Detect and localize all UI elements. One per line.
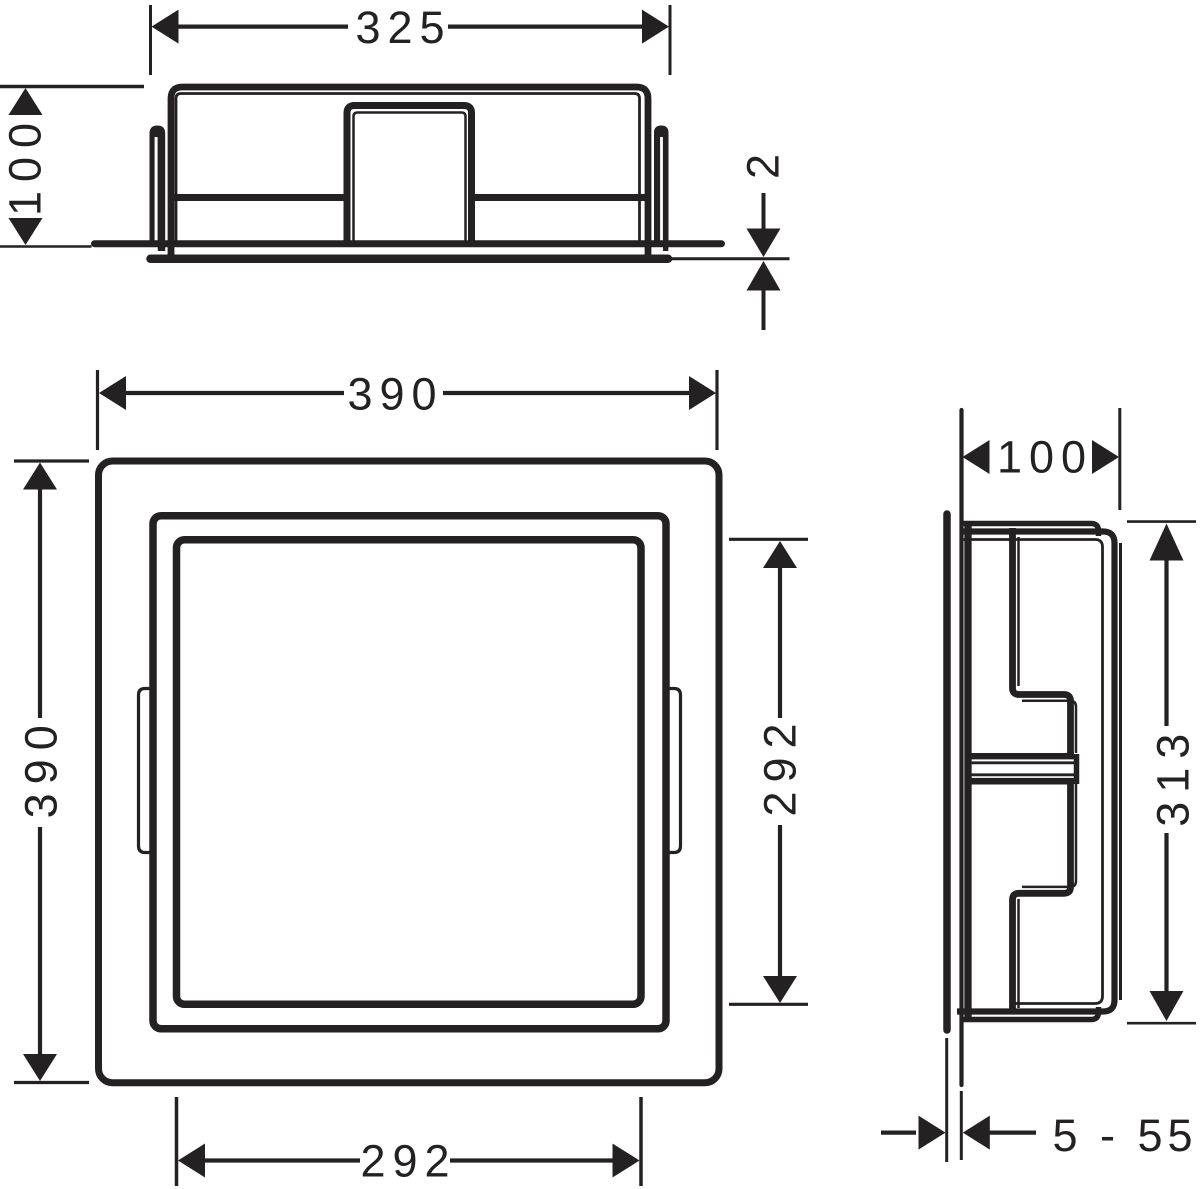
svg-text:292: 292 [755, 714, 806, 816]
svg-text:325: 325 [355, 2, 451, 53]
svg-text:100: 100 [0, 114, 51, 216]
svg-text:390: 390 [347, 369, 443, 420]
svg-text:313: 313 [1148, 725, 1199, 827]
svg-text:100: 100 [997, 432, 1093, 483]
svg-text:292: 292 [360, 1136, 456, 1187]
svg-text:390: 390 [16, 716, 67, 818]
svg-text:5 - 55: 5 - 55 [1052, 1110, 1197, 1161]
svg-text:2: 2 [738, 145, 789, 179]
